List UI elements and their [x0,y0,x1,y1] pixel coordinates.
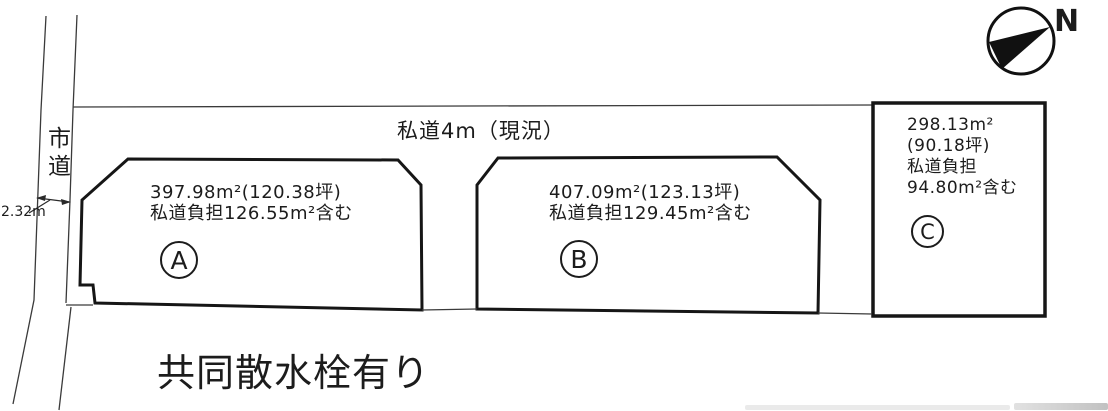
private-road-label: 私道4m（現況） [397,115,565,145]
city-road-label: 市道 [48,126,74,181]
ground-line-a-b [422,309,477,310]
scan-artifact [745,405,1010,410]
private-road-top-boundary [73,105,873,107]
plot-c-burden-line2: 94.80m²含む [907,178,1018,199]
plot-c-burden-line1: 私道負担 [907,157,1018,178]
plot-c-label: C [911,215,944,248]
plot-b-area: 407.09m²(123.13坪) [549,182,752,203]
plot-c-info: 298.13m² (90.18坪) 私道負担 94.80m²含む [907,115,1018,199]
plot-a-road-burden: 私道負担126.55m²含む [150,203,353,224]
road-width-dimension-label: 2.32m [1,204,46,220]
ground-line-b-c [818,313,872,314]
plot-b-label: B [560,240,598,278]
plot-a-info: 397.98m²(120.38坪) 私道負担126.55m²含む [150,182,353,224]
plot-b-info: 407.09m²(123.13坪) 私道負担129.45m²含む [549,182,752,224]
shared-sprinkler-note: 共同散水栓有り [157,342,430,397]
plot-c-area-line2: (90.18坪) [907,136,1018,157]
north-label: N [1054,4,1079,39]
plot-a-label: A [160,241,198,279]
land-plot-diagram: 市道 2.32m 私道4m（現況） 397.98m²(120.38坪) 私道負担… [0,0,1108,411]
plot-b-road-burden: 私道負担129.45m²含む [549,203,752,224]
plot-a-area: 397.98m²(120.38坪) [150,182,353,203]
plot-b-outline [477,157,820,313]
scan-artifact [1014,403,1108,410]
city-road-right-edge-lower [59,307,71,410]
plot-c-area-line1: 298.13m² [907,115,1018,136]
